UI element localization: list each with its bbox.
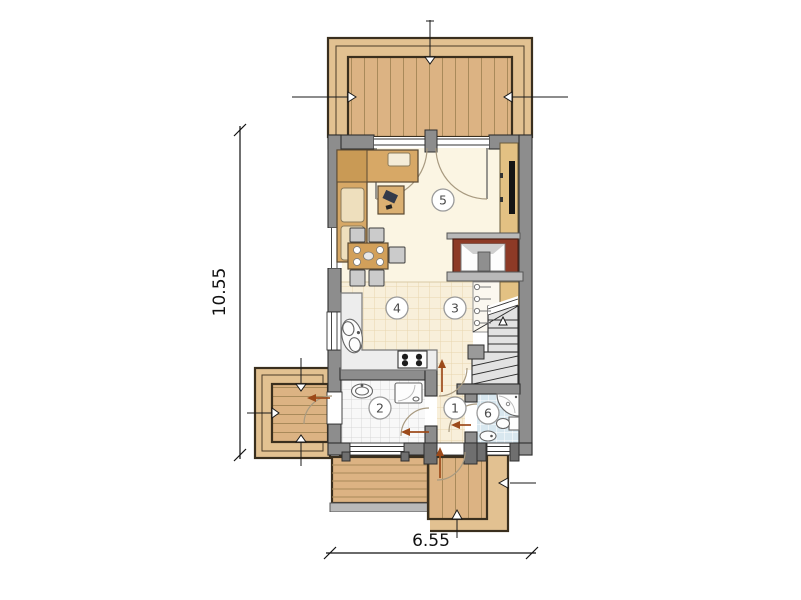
upper-terrace [292,20,568,137]
coffee-table [378,186,404,214]
dining-chair-5 [389,247,405,263]
svg-text:1: 1 [451,401,459,416]
window-utility [350,443,404,455]
vertical-dimension: 10.55 [210,124,246,461]
wall-right [519,135,532,455]
utility-window-jamb-right [401,452,409,461]
washing-machine [395,383,422,403]
terrace-steps [332,457,428,503]
terrace-step-edge [330,503,428,512]
stair-newel [468,345,484,359]
dining-chair-2 [369,228,384,242]
side-porch [247,358,330,466]
floors [341,148,519,443]
room-label-3: 3 [444,297,466,319]
tv-cabinet [500,143,518,236]
dining-chair-3 [350,270,365,286]
lower-terrace-planks [428,457,487,519]
horizontal-dimension-label: 6.55 [412,531,450,551]
wall-bath-west-b [465,432,477,443]
floor-plan-page: 1 2 3 4 5 6 10.55 6.55 [0,0,801,600]
fireplace-hearth [447,272,523,281]
lower-terrace [326,455,536,538]
wall-utility-east-b [425,426,437,443]
utility-sink [352,384,373,398]
fireplace [447,233,523,281]
svg-text:2: 2 [376,401,384,416]
wall-left-c [328,350,341,392]
front-door-jamb-right [464,443,477,464]
wall-left-b [328,268,341,312]
wall-bath-north [457,384,520,394]
svg-text:6: 6 [484,406,492,421]
bathroom-sink [480,431,496,441]
bath-window-jamb-left [477,443,486,461]
firebox [478,252,490,271]
upper-terrace-planks [348,57,512,137]
room-label-6: 6 [477,402,499,424]
tv [509,161,515,214]
window-left-2 [327,312,342,350]
vertical-dimension-label: 10.55 [210,268,230,317]
bath-window-jamb-right [510,443,519,461]
porch-door-opening [327,392,342,424]
utility-window-jamb-left [342,452,350,461]
front-door-jamb-left [424,443,437,464]
room-label-1: 1 [444,397,466,419]
svg-text:3: 3 [451,301,459,316]
dining-chair-1 [350,228,365,242]
sofa-cushion-1 [341,188,364,222]
side-porch-planks [272,384,328,442]
room-label-5: 5 [432,189,454,211]
dining-chair-4 [369,270,384,286]
floor-plan-drawing: 1 2 3 4 5 6 10.55 6.55 [0,0,801,600]
room-label-2: 2 [369,397,391,419]
stove [398,351,427,368]
svg-text:5: 5 [439,193,447,208]
svg-text:4: 4 [393,301,401,316]
sofa-pillow [388,153,410,166]
room-label-4: 4 [386,297,408,319]
